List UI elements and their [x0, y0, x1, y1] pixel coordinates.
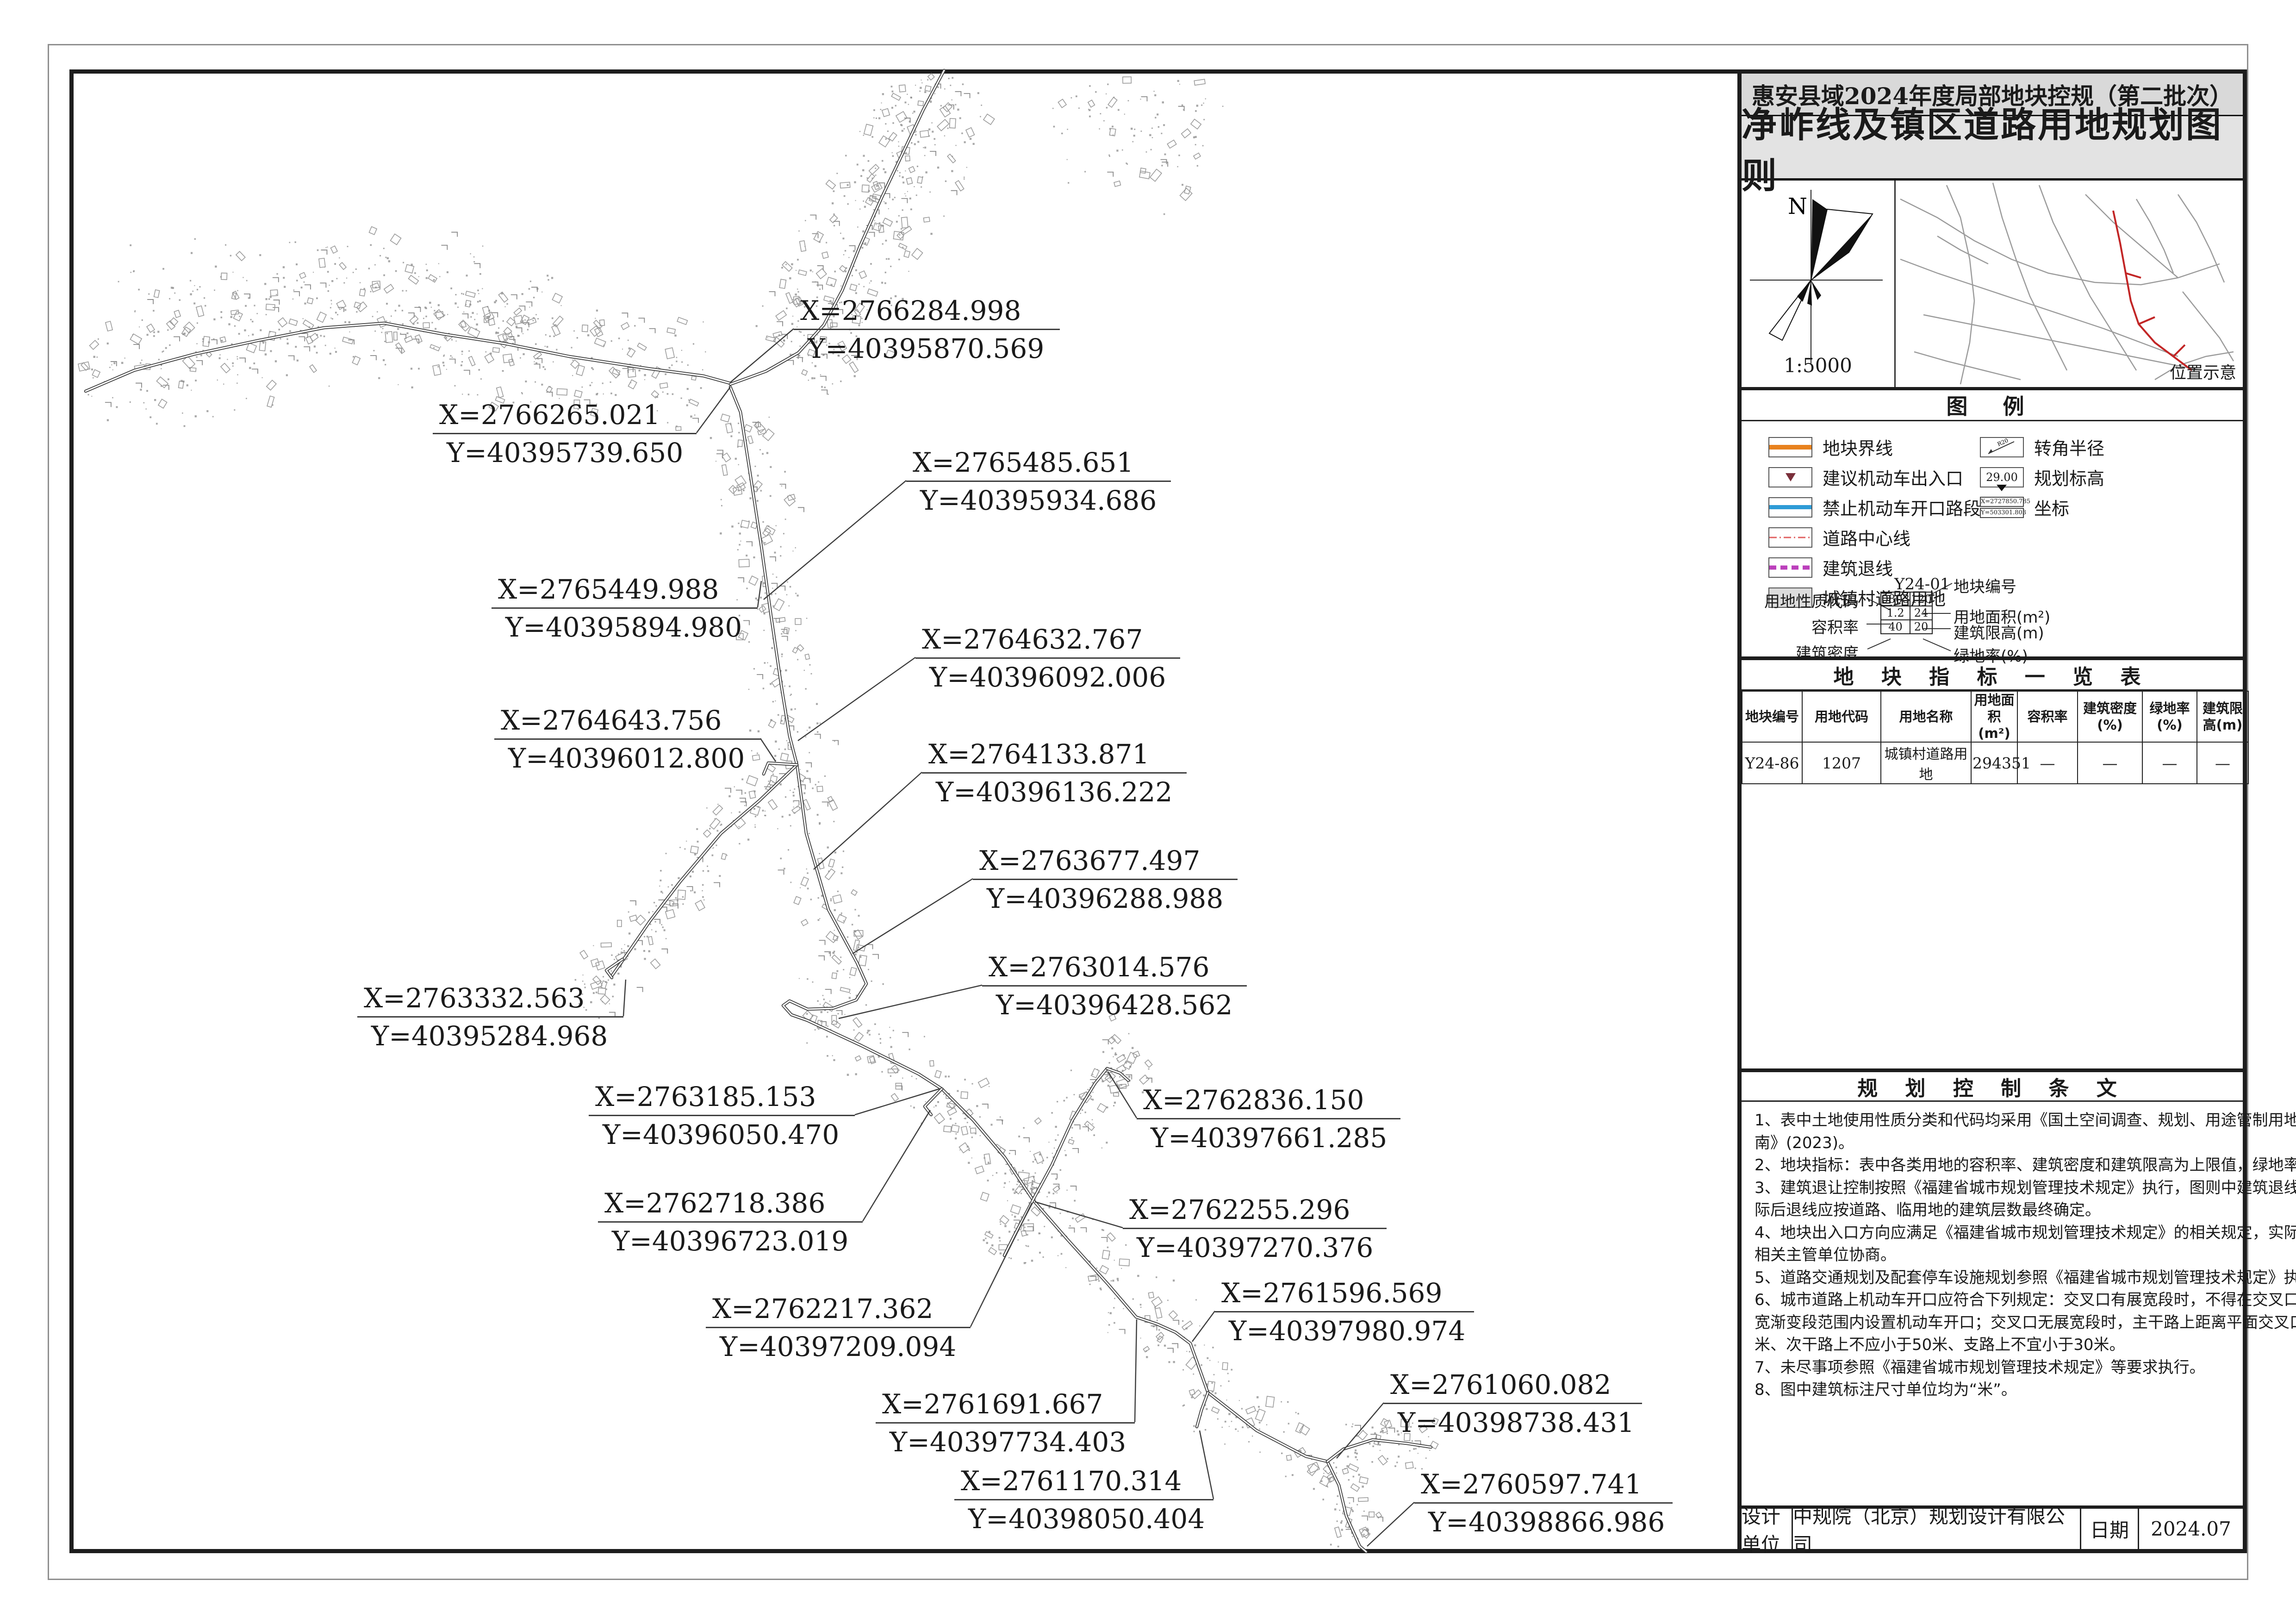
corner-radius-icon: R20	[1981, 438, 2023, 456]
coord-y: Y=40395894.980	[492, 609, 758, 642]
coord-y: Y=40397980.974	[1215, 1312, 1474, 1346]
coord-y: Y=40398738.431	[1384, 1404, 1642, 1437]
coord-callout: X=2765449.988Y=40395894.980	[492, 570, 758, 642]
legend-item-plot-boundary: 地块界线	[1768, 434, 1893, 460]
coord-y: Y=40395870.569	[794, 330, 1060, 363]
coord-y: Y=40396136.222	[922, 774, 1187, 807]
plot-boundary-line-icon	[1769, 445, 1811, 450]
coord-x: X=2761060.082	[1384, 1366, 1642, 1404]
coord-callout: X=2765485.651Y=40395934.686	[906, 443, 1171, 515]
provisions-text: 1、表中土地使用性质分类和代码均采用《国土空间调查、规划、用途管制用地用海分类指…	[1742, 1102, 2243, 1505]
coord-callout: X=2763677.497Y=40396288.988	[973, 842, 1238, 913]
north-arrow-cell: N 1:5000	[1742, 181, 1896, 387]
coord-callout: X=2763185.153Y=40396050.470	[589, 1078, 855, 1149]
coord-x: X=2763014.576	[982, 948, 1247, 987]
coord-y: Y=40397270.376	[1123, 1229, 1387, 1262]
coord-callout: X=2764643.756Y=40396012.800	[494, 701, 760, 773]
no-opening-line-icon	[1769, 505, 1811, 509]
legend-item-no-opening: 禁止机动车开口路段	[1768, 494, 1981, 520]
coord-x: X=2762718.386	[598, 1184, 863, 1223]
coord-x: X=2764133.871	[922, 735, 1187, 774]
coord-y: Y=40395934.686	[906, 482, 1171, 515]
index-table-title: 地 块 指 标 一 览 表	[1742, 660, 2243, 691]
coord-callout: X=2766284.998Y=40395870.569	[794, 292, 1060, 363]
height-label: 建筑限高(m)	[1954, 620, 2044, 643]
coord-y: Y=40395284.968	[357, 1018, 623, 1051]
north-label: N	[1788, 194, 1807, 219]
coord-y: Y=40398866.986	[1414, 1504, 1673, 1537]
coord-callout: X=2766265.021Y=40395739.650	[433, 396, 697, 468]
coord-x: X=2766284.998	[794, 292, 1060, 330]
coord-callout: X=2762836.150Y=40397661.285	[1137, 1081, 1400, 1153]
provisions-title: 规 划 控 制 条 文	[1742, 1068, 2243, 1102]
location-map-caption: 位置示意	[2170, 359, 2236, 383]
coord-callout: X=2764133.871Y=40396136.222	[922, 735, 1187, 807]
coord-x: X=2763185.153	[589, 1078, 855, 1116]
plan-sheet: X=2766284.998Y=40395870.569 X=2766265.02…	[0, 0, 2296, 1624]
coord-callout: X=2760597.741Y=40398866.986	[1414, 1465, 1673, 1537]
coord-callout: X=2761060.082Y=40398738.431	[1384, 1366, 1642, 1437]
coord-callout: X=2763014.576Y=40396428.562	[982, 948, 1247, 1020]
entrance-triangle-icon	[1786, 473, 1796, 481]
centerline-dashdot-icon	[1769, 535, 1811, 540]
coord-x: X=2761691.667	[876, 1385, 1135, 1424]
coord-x: X=2764643.756	[494, 701, 760, 740]
coordinate-sample-icon: X=2727850.785 Y=503301.803	[1980, 497, 2024, 518]
coord-x: X=2760597.741	[1414, 1465, 1673, 1504]
coord-x: X=2761596.569	[1215, 1274, 1474, 1312]
coord-x: X=2762217.362	[706, 1290, 971, 1328]
legend-title: 图 例	[1742, 390, 2243, 421]
plot-no-label: 地块编号	[1954, 574, 2016, 597]
coord-y: Y=40397209.094	[706, 1328, 971, 1362]
setback-dashed-icon	[1769, 565, 1811, 570]
coord-x: X=2766265.021	[433, 396, 697, 434]
coord-y: Y=40397661.285	[1137, 1119, 1400, 1153]
coord-callout: X=2762718.386Y=40396723.019	[598, 1184, 863, 1256]
elevation-value: 29.00	[1986, 470, 2018, 484]
design-unit-value: 中规院（北京）规划设计有限公司	[1792, 1509, 2080, 1549]
coord-y: Y=40396428.562	[982, 987, 1247, 1020]
coord-y: Y=40396012.800	[494, 740, 760, 773]
legend-item-corner-radius: R20 转角半径	[1980, 434, 2104, 460]
coord-y: Y=40398050.404	[954, 1500, 1213, 1534]
plot-index-table: 地块编号用地代码 用地名称用地面积(m²) 容积率建筑密度(%) 绿地率(%)建…	[1742, 691, 2243, 773]
date-label: 日期	[2080, 1509, 2138, 1549]
legend: 地块界线 建议机动车出入口 禁止机动车开口路段 道路中心线 建筑退线	[1742, 421, 2243, 660]
legend-item-planned-elevation: 29.00 规划标高	[1980, 464, 2104, 490]
legend-item-vehicle-entrance: 建议机动车出入口	[1768, 464, 1963, 490]
coord-x: X=2762836.150	[1137, 1081, 1400, 1119]
legend-item-coordinate: X=2727850.785 Y=503301.803 坐标	[1980, 494, 2069, 520]
coord-y: Y=40396050.470	[589, 1116, 855, 1149]
coord-y: Y=40397734.403	[876, 1424, 1135, 1457]
plot-indicator-diagram: 用地性质代码 容积率 建筑密度 Y24-01 0803120 1.224 402…	[1742, 574, 2243, 660]
coord-x: X=2762255.296	[1123, 1191, 1387, 1229]
coord-x: X=2765449.988	[492, 570, 758, 609]
coord-x: X=2763332.563	[357, 979, 623, 1018]
svg-text:R20: R20	[1997, 438, 2010, 448]
coord-y: Y=40396092.006	[915, 659, 1180, 692]
legend-item-road-centerline: 道路中心线	[1768, 525, 1910, 550]
coord-callout: X=2761596.569Y=40397980.974	[1215, 1274, 1474, 1346]
design-unit-label: 设计单位	[1742, 1509, 1792, 1549]
date-value: 2024.07	[2138, 1509, 2243, 1549]
table-header-row: 地块编号用地代码 用地名称用地面积(m²) 容积率建筑密度(%) 绿地率(%)建…	[1742, 691, 2248, 742]
coord-callout: X=2764632.767Y=40396092.006	[915, 620, 1180, 692]
code-label: 用地性质代码	[1764, 589, 1859, 612]
coord-callout: X=2761691.667Y=40397734.403	[876, 1385, 1135, 1457]
coord-callout: X=2763332.563Y=40395284.968	[357, 979, 623, 1051]
coord-x: X=2763677.497	[973, 842, 1238, 880]
far-label: 容积率	[1811, 615, 1859, 637]
location-map-cell: 位置示意	[1896, 181, 2243, 387]
title-block-panel: 惠安县域2024年度局部地块控规（第二批次） 净岞线及镇区道路用地规划图则 N	[1737, 74, 2243, 1549]
coord-x: X=2765485.651	[906, 443, 1171, 482]
coord-y: Y=40396288.988	[973, 880, 1238, 913]
footer-bar: 设计单位 中规院（北京）规划设计有限公司 日期 2024.07	[1742, 1505, 2243, 1549]
elevation-triangle-icon	[1997, 485, 2007, 491]
coord-y: Y=40395739.650	[433, 434, 697, 468]
coord-x: X=2764632.767	[915, 620, 1180, 659]
indicator-mini-table: 0803120 1.224 4020	[1880, 592, 1933, 634]
plot-number: Y24-01	[1894, 575, 1950, 593]
coord-y: Y=40396723.019	[598, 1223, 863, 1256]
coord-callout: X=2762217.362Y=40397209.094	[706, 1290, 971, 1362]
coord-callout: X=2761170.314Y=40398050.404	[954, 1462, 1213, 1534]
coord-callout: X=2762255.296Y=40397270.376	[1123, 1191, 1387, 1262]
sheet-title: 净岞线及镇区道路用地规划图则	[1742, 116, 2243, 181]
map-scale: 1:5000	[1742, 354, 1894, 377]
coord-x: X=2761170.314	[954, 1462, 1213, 1500]
